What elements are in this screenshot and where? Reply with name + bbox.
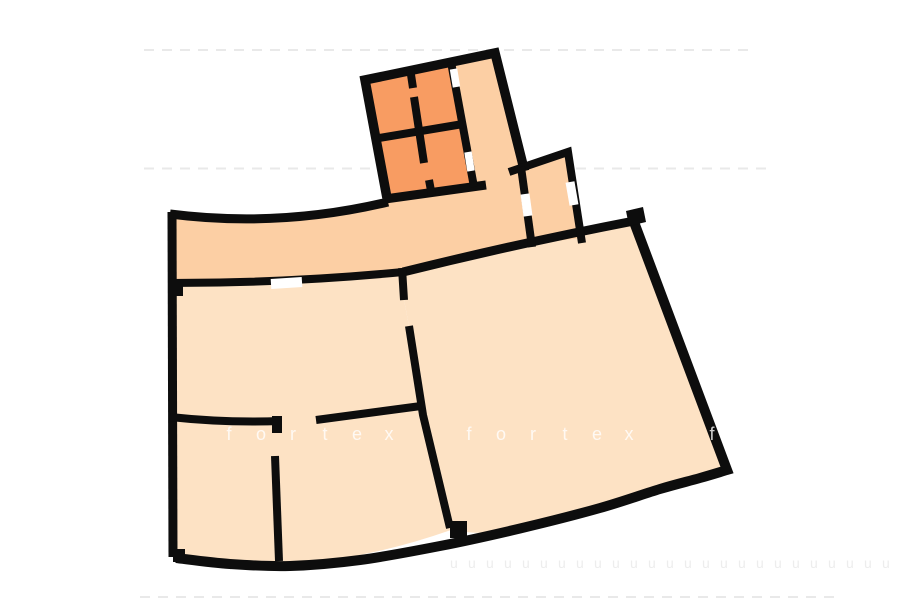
svg-text:u: u	[792, 555, 800, 571]
svg-text:u: u	[846, 555, 854, 571]
svg-text:r: r	[290, 424, 296, 444]
svg-text:u: u	[594, 555, 602, 571]
svg-text:u: u	[810, 555, 818, 571]
svg-text:u: u	[630, 555, 638, 571]
svg-text:u: u	[666, 555, 674, 571]
svg-text:u: u	[612, 555, 620, 571]
svg-text:u: u	[882, 555, 890, 571]
svg-text:e: e	[352, 424, 362, 444]
svg-text:u: u	[828, 555, 836, 571]
svg-text:u: u	[540, 555, 548, 571]
svg-text:t: t	[562, 424, 567, 444]
svg-text:u: u	[486, 555, 494, 571]
svg-text:r: r	[530, 424, 536, 444]
svg-text:u: u	[522, 555, 530, 571]
svg-text:o: o	[496, 424, 506, 444]
svg-text:u: u	[504, 555, 512, 571]
svg-text:u: u	[756, 555, 764, 571]
svg-text:u: u	[648, 555, 656, 571]
svg-text:x: x	[625, 424, 634, 444]
svg-text:u: u	[774, 555, 782, 571]
svg-text:u: u	[558, 555, 566, 571]
svg-text:u: u	[576, 555, 584, 571]
svg-text:u: u	[738, 555, 746, 571]
svg-text:u: u	[864, 555, 872, 571]
svg-text:t: t	[322, 424, 327, 444]
svg-text:o: o	[256, 424, 266, 444]
svg-text:e: e	[592, 424, 602, 444]
svg-text:x: x	[385, 424, 394, 444]
svg-text:u: u	[450, 555, 458, 571]
svg-text:u: u	[684, 555, 692, 571]
svg-text:u: u	[468, 555, 476, 571]
svg-text:u: u	[720, 555, 728, 571]
svg-text:u: u	[702, 555, 710, 571]
